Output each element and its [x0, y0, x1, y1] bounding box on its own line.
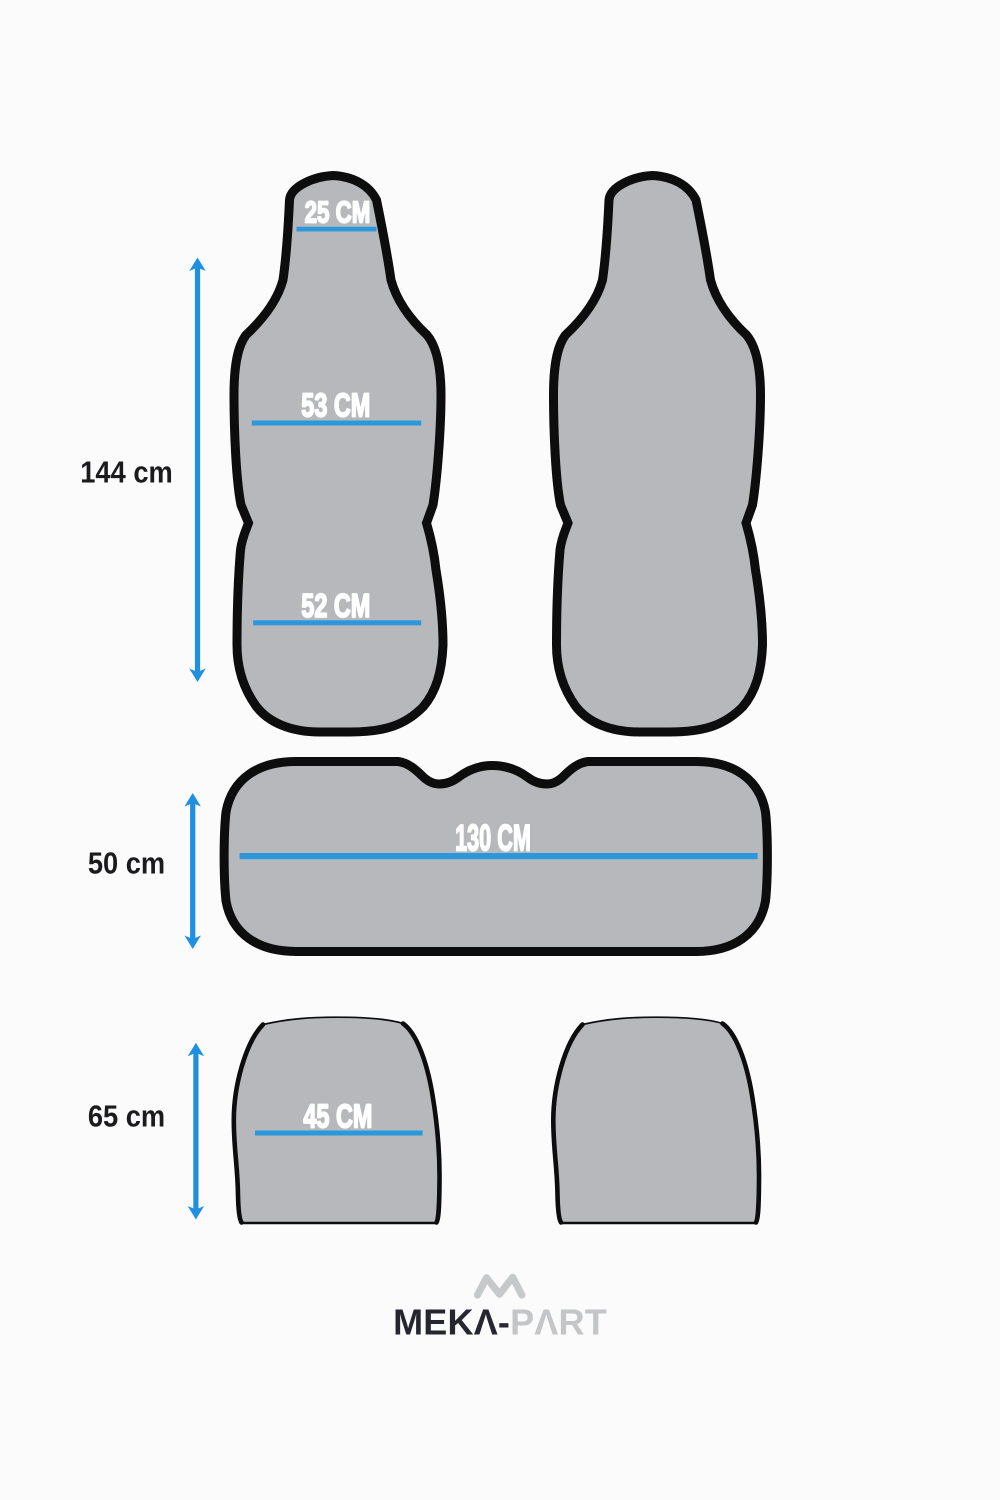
svg-text:25 CM: 25 CM	[305, 195, 371, 229]
svg-text:45 CM: 45 CM	[303, 1098, 372, 1135]
svg-text:MEKΛ-PΛRT: MEKΛ-PΛRT	[393, 1302, 607, 1343]
svg-text:53 CM: 53 CM	[301, 387, 370, 424]
svg-text:130 CM: 130 CM	[455, 819, 531, 859]
svg-text:52 CM: 52 CM	[301, 588, 370, 625]
svg-text:50 cm: 50 cm	[88, 847, 165, 881]
svg-text:144 cm: 144 cm	[80, 456, 172, 490]
svg-text:65 cm: 65 cm	[88, 1100, 165, 1134]
